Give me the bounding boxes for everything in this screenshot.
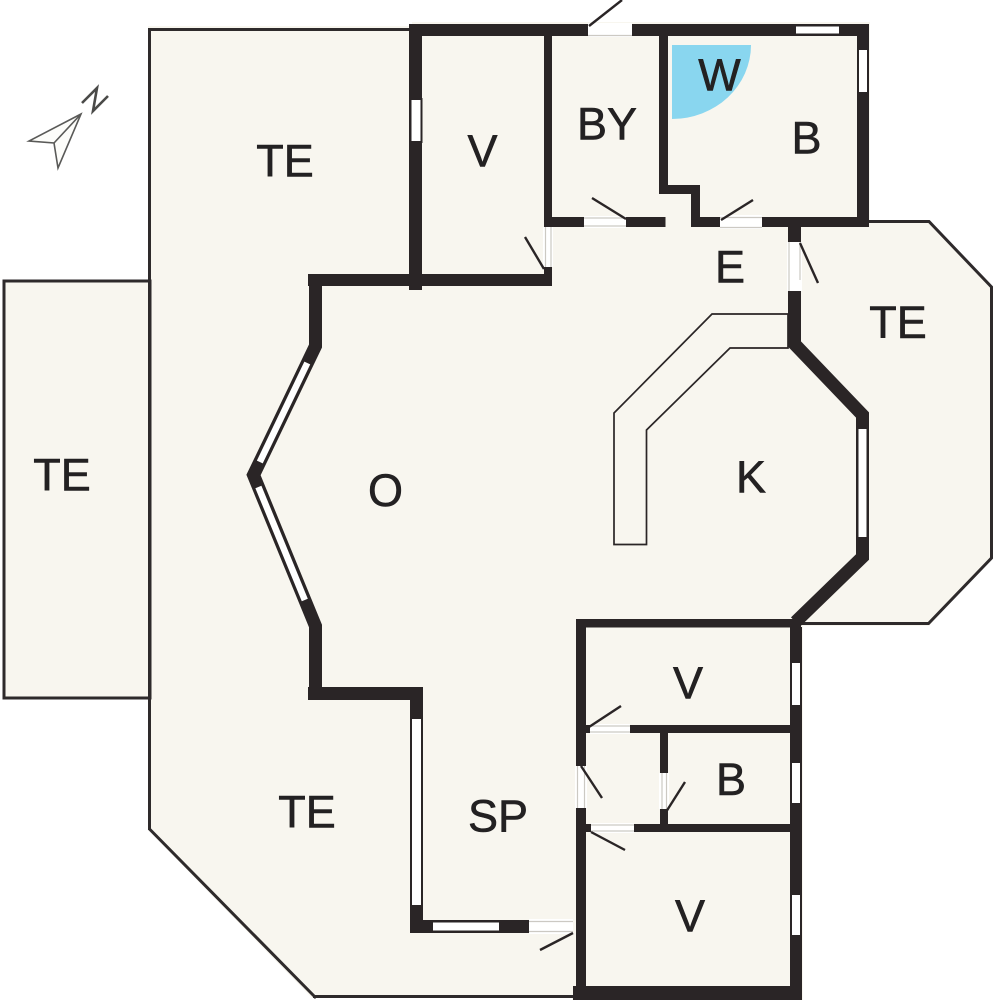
svg-text:V: V [673,657,703,708]
svg-text:K: K [736,451,766,502]
svg-text:BY: BY [577,98,637,149]
svg-text:E: E [715,241,745,292]
svg-text:TE: TE [869,297,927,348]
svg-text:V: V [467,125,497,176]
svg-text:SP: SP [468,790,528,841]
svg-text:W: W [698,49,741,100]
svg-text:B: B [791,112,821,163]
svg-text:B: B [716,754,746,805]
svg-text:O: O [368,465,403,516]
svg-text:TE: TE [256,135,314,186]
svg-text:TE: TE [278,786,336,837]
svg-text:TE: TE [33,449,91,500]
svg-text:V: V [675,890,705,941]
